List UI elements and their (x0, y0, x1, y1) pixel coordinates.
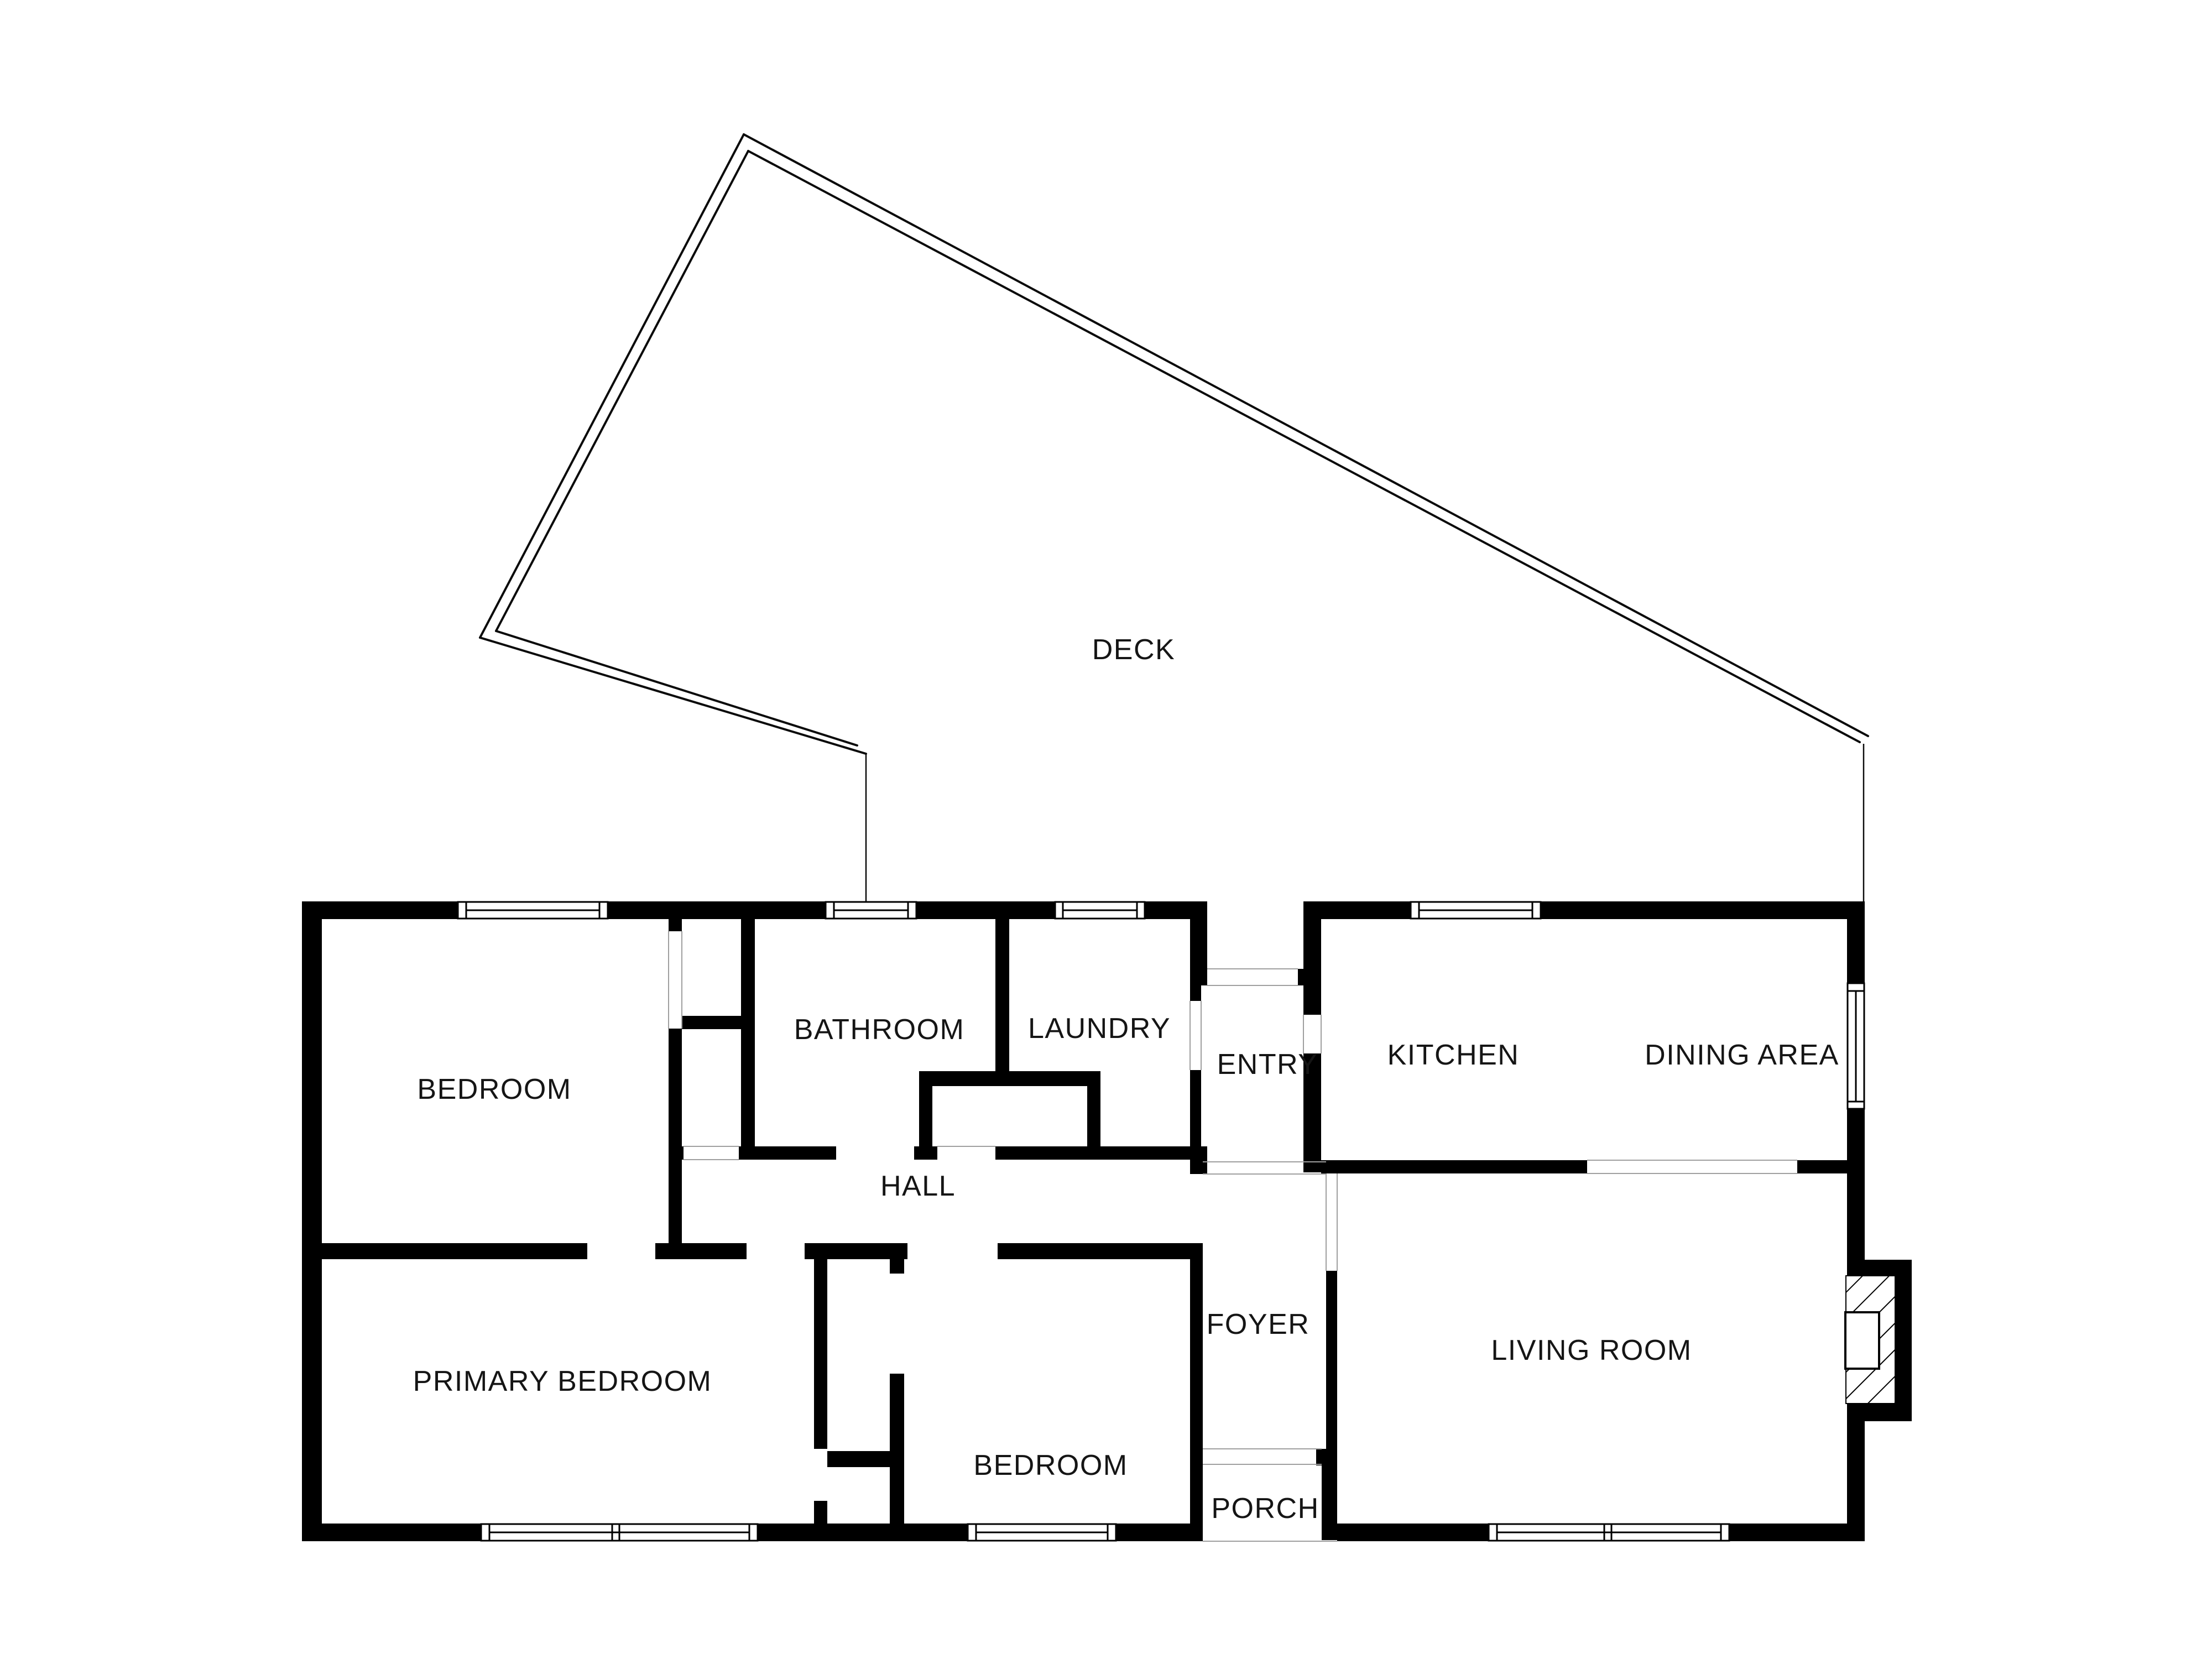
room-label-bedroom-top: BEDROOM (417, 1073, 571, 1105)
window-bedroom-bottom (968, 1524, 1116, 1541)
deck-edge-bottom-inner (496, 631, 857, 745)
room-label-primary-bedroom: PRIMARY BEDROOM (413, 1365, 712, 1397)
room-labels: DECK BEDROOM BATHROOM LAUNDRY ENTRY KITC… (413, 634, 1839, 1525)
room-label-hall: HALL (880, 1170, 956, 1202)
window-primary-bedroom (481, 1524, 758, 1541)
deck-outline (480, 134, 1868, 902)
window-bedroom-top (458, 902, 608, 919)
deck-edge-top-inner (748, 151, 1860, 742)
room-label-deck: DECK (1092, 634, 1175, 666)
room-label-entry: ENTRY (1217, 1048, 1318, 1081)
deck-edge-bottom-outer (480, 638, 866, 754)
room-label-dining-area: DINING AREA (1645, 1039, 1839, 1071)
firebox (1845, 1312, 1879, 1369)
room-label-living-room: LIVING ROOM (1491, 1334, 1692, 1366)
fireplace (1845, 1276, 1895, 1404)
window-dining (1848, 983, 1864, 1109)
deck-edge-left-inner (496, 151, 748, 631)
room-label-kitchen: KITCHEN (1387, 1039, 1520, 1071)
deck-edge-top-outer (744, 134, 1868, 736)
deck-edge-left-outer (480, 134, 744, 638)
room-label-foyer: FOYER (1207, 1308, 1310, 1340)
floor-plan-canvas: DECK BEDROOM BATHROOM LAUNDRY ENTRY KITC… (0, 0, 2212, 1659)
room-label-bedroom-bottom: BEDROOM (973, 1449, 1128, 1481)
window-bathroom (826, 902, 916, 919)
window-kitchen (1411, 902, 1541, 919)
room-label-porch: PORCH (1211, 1493, 1319, 1525)
walls (302, 901, 1912, 1541)
room-label-laundry: LAUNDRY (1028, 1013, 1171, 1045)
window-living-room (1489, 1524, 1729, 1541)
window-laundry (1055, 902, 1145, 919)
room-label-bathroom: BATHROOM (794, 1014, 965, 1046)
